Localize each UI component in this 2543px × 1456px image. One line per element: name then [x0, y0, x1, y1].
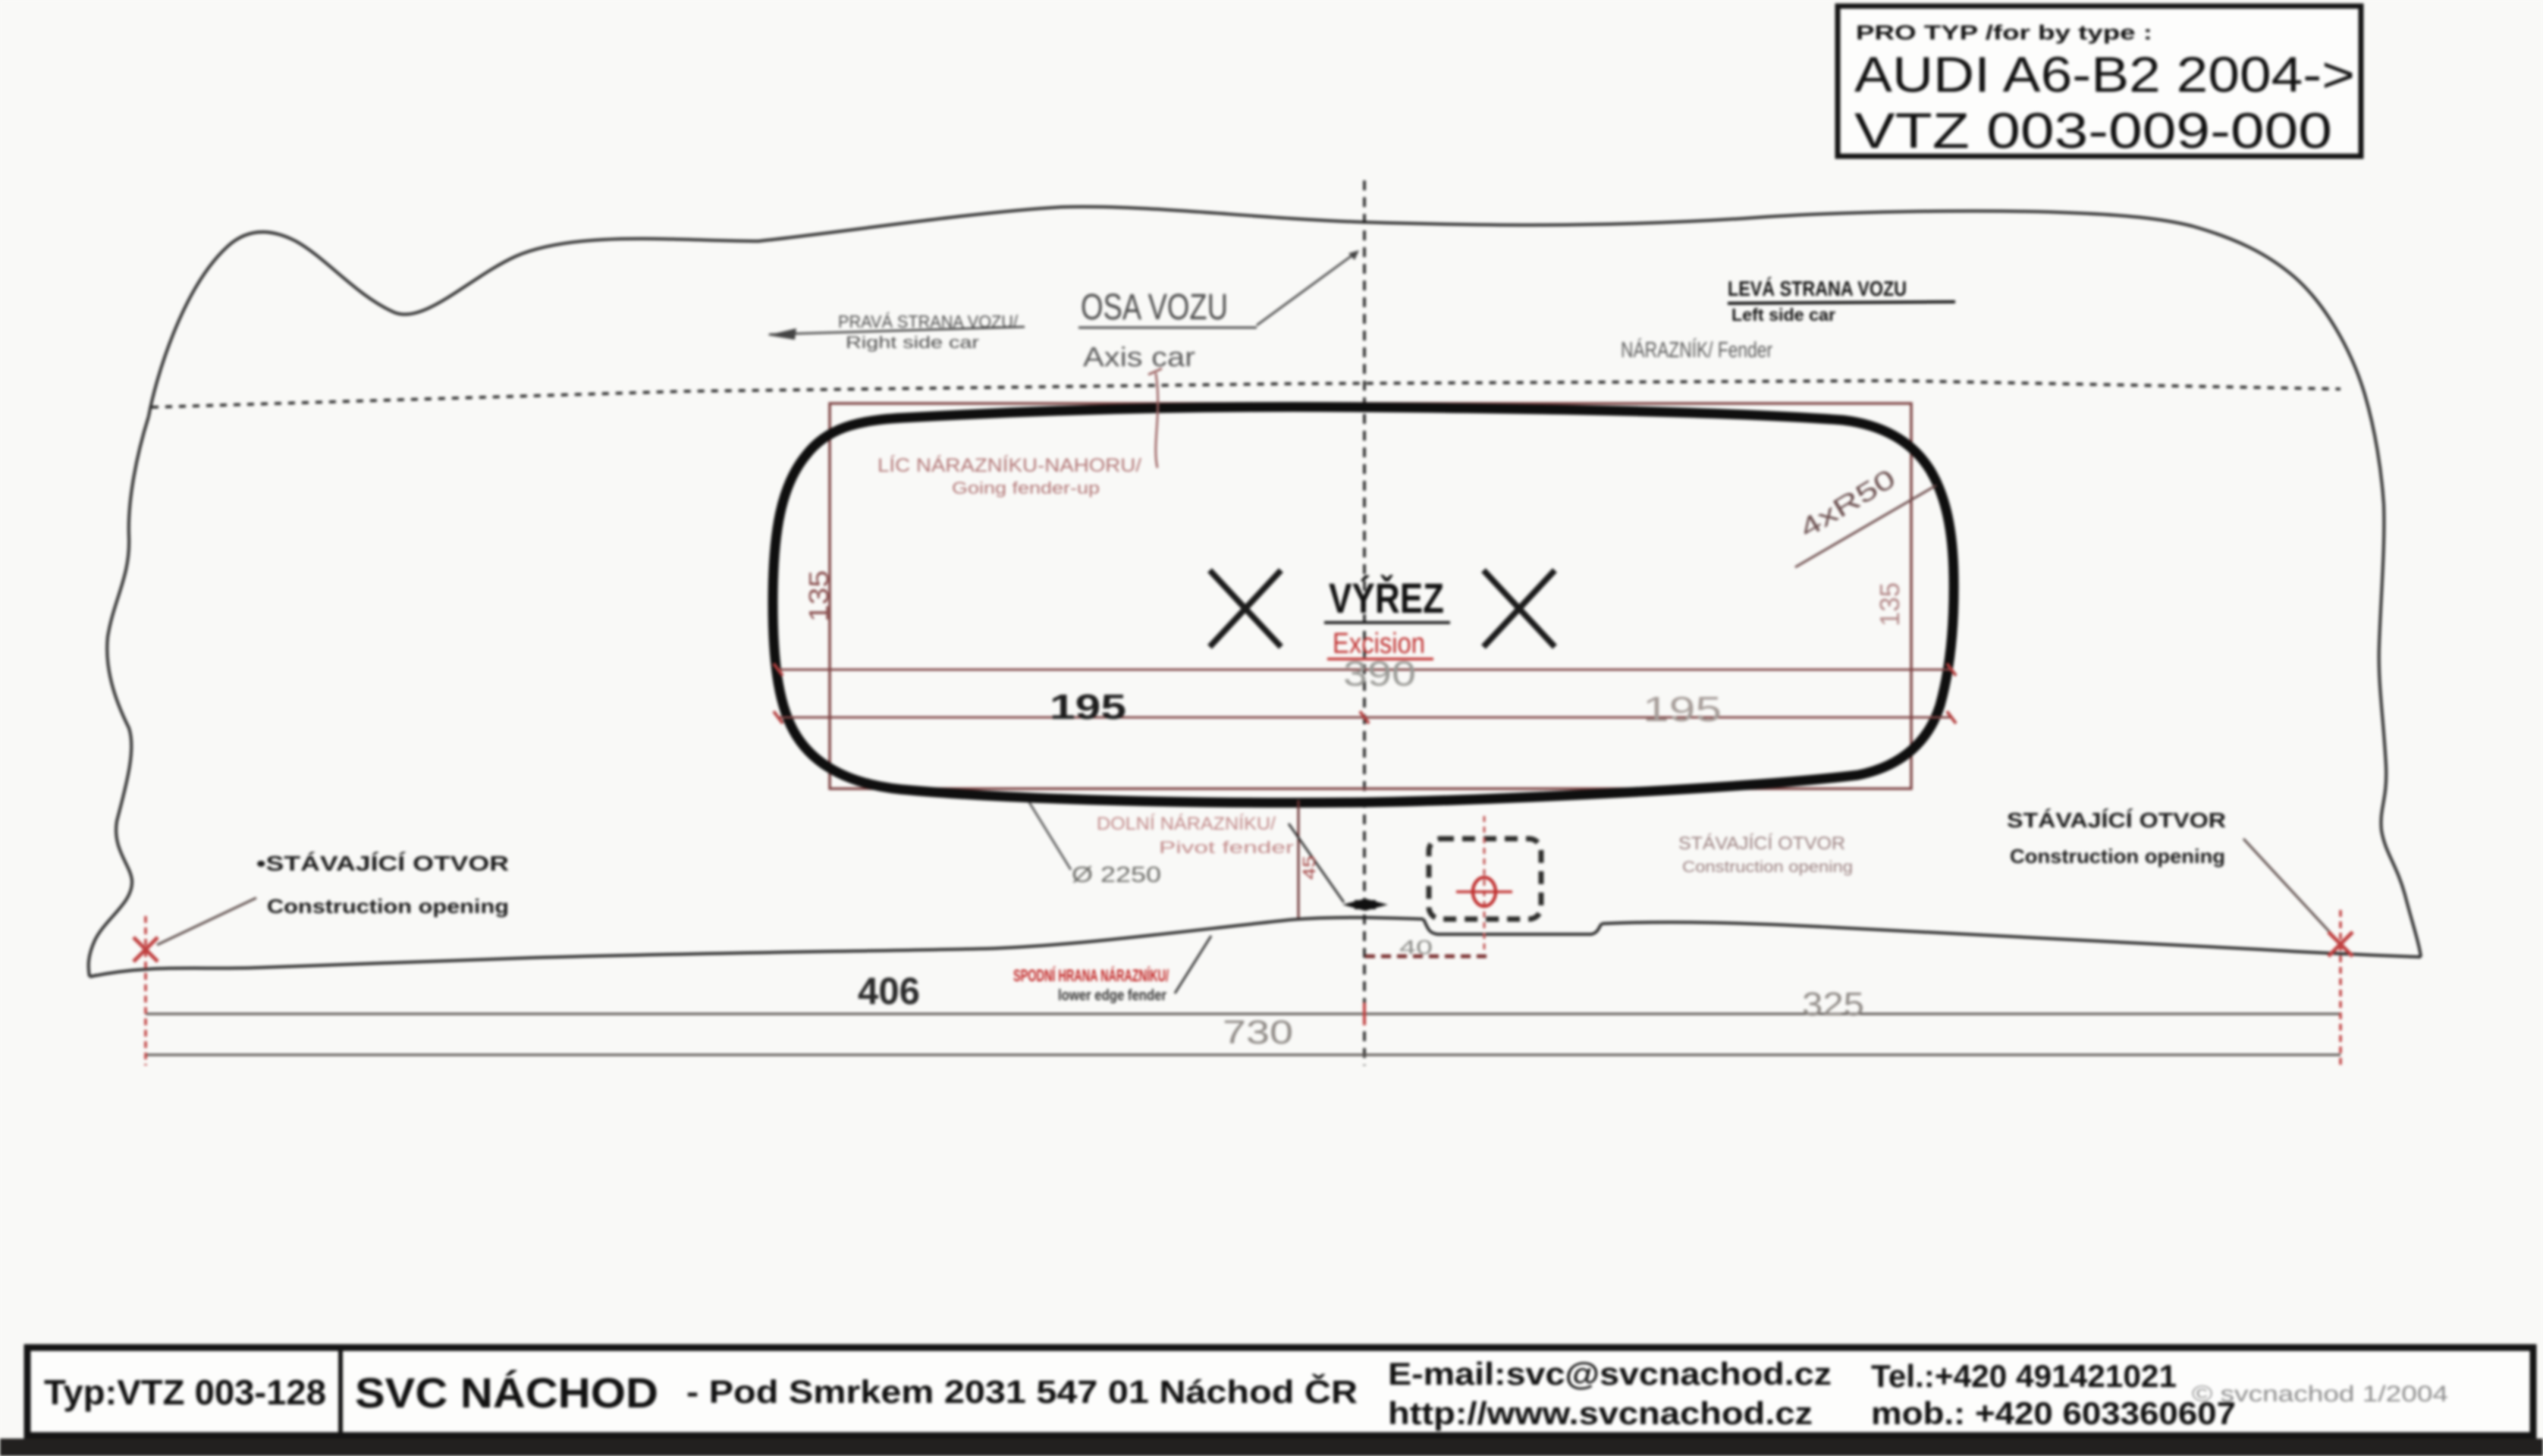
- svg-text:730: 730: [1223, 1014, 1293, 1051]
- svg-text:Tel.:+420 491421021: Tel.:+420 491421021: [1871, 1358, 2177, 1394]
- svg-text:STÁVAJÍCÍ OTVOR: STÁVAJÍCÍ OTVOR: [1678, 833, 1845, 854]
- svg-text:406: 406: [858, 970, 920, 1012]
- svg-text:LEVÁ STRANA VOZU: LEVÁ STRANA VOZU: [1728, 277, 1907, 300]
- svg-text:PRAVÁ STRANA VOZU/: PRAVÁ STRANA VOZU/: [838, 312, 1019, 331]
- svg-text:© svcnachod 1/2004: © svcnachod 1/2004: [2192, 1382, 2448, 1407]
- svg-text:390: 390: [1343, 654, 1416, 693]
- svg-text:NÁRAZNÍK/ Fender: NÁRAZNÍK/ Fender: [1621, 337, 1772, 362]
- svg-text:•STÁVAJÍCÍ OTVOR: •STÁVAJÍCÍ OTVOR: [256, 852, 509, 875]
- svg-text:Construction opening: Construction opening: [2010, 845, 2225, 868]
- svg-text:195: 195: [1050, 687, 1126, 726]
- svg-text:135: 135: [1874, 582, 1905, 626]
- svg-text:Ø 2250: Ø 2250: [1072, 863, 1161, 887]
- svg-text:SPODNÍ HRANA NÁRAZNÍKU/: SPODNÍ HRANA NÁRAZNÍKU/: [1013, 966, 1169, 985]
- svg-text:http://www.svcnachod.cz: http://www.svcnachod.cz: [1388, 1395, 1813, 1431]
- svg-text:mob.: +420 603360607: mob.: +420 603360607: [1871, 1395, 2236, 1431]
- svg-text:Construction opening: Construction opening: [1682, 858, 1853, 876]
- svg-text:Typ:VTZ 003-128: Typ:VTZ 003-128: [44, 1373, 326, 1412]
- svg-text:135: 135: [803, 570, 834, 622]
- svg-text:325: 325: [1802, 986, 1864, 1023]
- svg-text:Going fender-up: Going fender-up: [952, 479, 1100, 497]
- svg-text:STÁVAJÍCÍ OTVOR: STÁVAJÍCÍ OTVOR: [2007, 808, 2226, 832]
- svg-text:Left side car: Left side car: [1731, 305, 1835, 325]
- svg-text:lower edge fender: lower edge fender: [1058, 987, 1166, 1004]
- svg-text:Right side car: Right side car: [846, 333, 979, 352]
- svg-text:AUDI A6-B2 2004->: AUDI A6-B2 2004->: [1854, 46, 2355, 102]
- svg-text:- Pod Smrkem 2031 547 01 Nách: - Pod Smrkem 2031 547 01 Náchod ČR: [686, 1373, 1358, 1410]
- svg-text:40: 40: [1399, 936, 1433, 959]
- svg-text:Axis car: Axis car: [1083, 341, 1195, 372]
- svg-text:OSA VOZU: OSA VOZU: [1081, 287, 1228, 328]
- svg-text:VTZ 003-009-000: VTZ 003-009-000: [1854, 102, 2332, 158]
- svg-text:VÝŘEZ: VÝŘEZ: [1329, 574, 1444, 622]
- svg-text:195: 195: [1643, 689, 1722, 729]
- svg-text:45: 45: [1299, 855, 1319, 880]
- svg-text:DOLNÍ NÁRAZNÍKU/: DOLNÍ NÁRAZNÍKU/: [1097, 814, 1276, 834]
- svg-text:Pivot fender: Pivot fender: [1159, 838, 1294, 857]
- svg-text:Construction opening: Construction opening: [267, 895, 509, 918]
- svg-text:SVC NÁCHOD: SVC NÁCHOD: [355, 1369, 658, 1417]
- svg-text:LÍC NÁRAZNÍKU-NAHORU/: LÍC NÁRAZNÍKU-NAHORU/: [877, 454, 1141, 476]
- svg-text:E-mail:svc@svcnachod.cz: E-mail:svc@svcnachod.cz: [1388, 1356, 1832, 1392]
- svg-text:PRO TYP /for by type :: PRO TYP /for by type :: [1856, 21, 2152, 44]
